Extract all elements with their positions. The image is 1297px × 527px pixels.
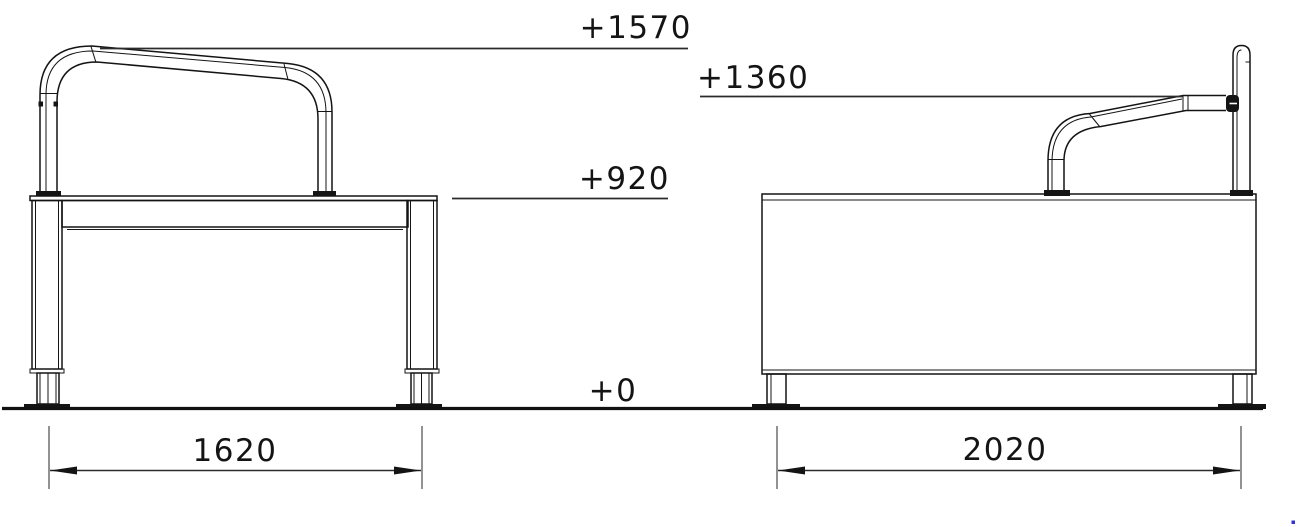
level-label-1570: +1570 [580, 10, 692, 46]
side-left-leg [767, 374, 786, 404]
hoop-weld-dot-left [39, 102, 44, 107]
drawing-canvas: +1570 +1360 +920 +0 1620 2020 [0, 0, 1297, 527]
table-apron [62, 201, 408, 228]
arm-base-flange [1044, 190, 1070, 196]
right-ankle-inner-lines [414, 373, 429, 404]
side-view [752, 46, 1266, 410]
table-top [30, 196, 437, 230]
arm-seam-line [1052, 99, 1182, 192]
handrail-hoop [36, 46, 336, 196]
dim-label-front-width: 1620 [193, 433, 278, 469]
post-inner-line [1237, 50, 1242, 191]
left-ankle-inner-lines [40, 373, 56, 404]
cursor-dot [1292, 521, 1296, 525]
dim-side-arrow-left [778, 467, 805, 475]
dim-front-arrow-left [50, 467, 77, 475]
post-base-flange [1230, 190, 1253, 196]
right-leg-inner-lines [411, 201, 434, 370]
table-legs [24, 201, 442, 410]
hoop-joint-tick-top-left [91, 47, 96, 63]
dim-side-arrow-right [1213, 467, 1240, 475]
side-legs [752, 374, 1266, 409]
dim-label-side-width: 2020 [963, 432, 1048, 468]
panel-body [762, 194, 1256, 374]
right-leg [407, 201, 437, 370]
front-view [24, 46, 442, 409]
level-label-1360: +1360 [697, 60, 809, 96]
hoop-joint-tick-top-right [284, 64, 288, 80]
level-label-920: +920 [579, 161, 670, 197]
dimension-front-width: 1620 [49, 426, 422, 489]
left-leg [32, 201, 62, 370]
hoop-outer-edge [40, 46, 332, 196]
left-leg-inner-lines [36, 201, 59, 370]
post-outline [1233, 46, 1250, 192]
level-annotations: +1570 +1360 +920 +0 [100, 10, 1183, 409]
level-label-0: +0 [589, 373, 638, 409]
side-right-leg [1233, 374, 1252, 404]
side-handrail-post [1226, 46, 1253, 197]
hoop-seam-line [46, 51, 326, 196]
side-swing-arm [1044, 96, 1226, 197]
elevation-drawing-svg: +1570 +1360 +920 +0 1620 2020 [0, 0, 1297, 527]
dimension-side-width: 2020 [777, 426, 1241, 489]
arm-bottom-edge [1064, 111, 1226, 193]
hoop-inner-edge [57, 62, 318, 196]
hoop-weld-dot-right [54, 102, 59, 107]
side-panel [762, 194, 1256, 374]
dim-front-arrow-right [394, 467, 421, 475]
